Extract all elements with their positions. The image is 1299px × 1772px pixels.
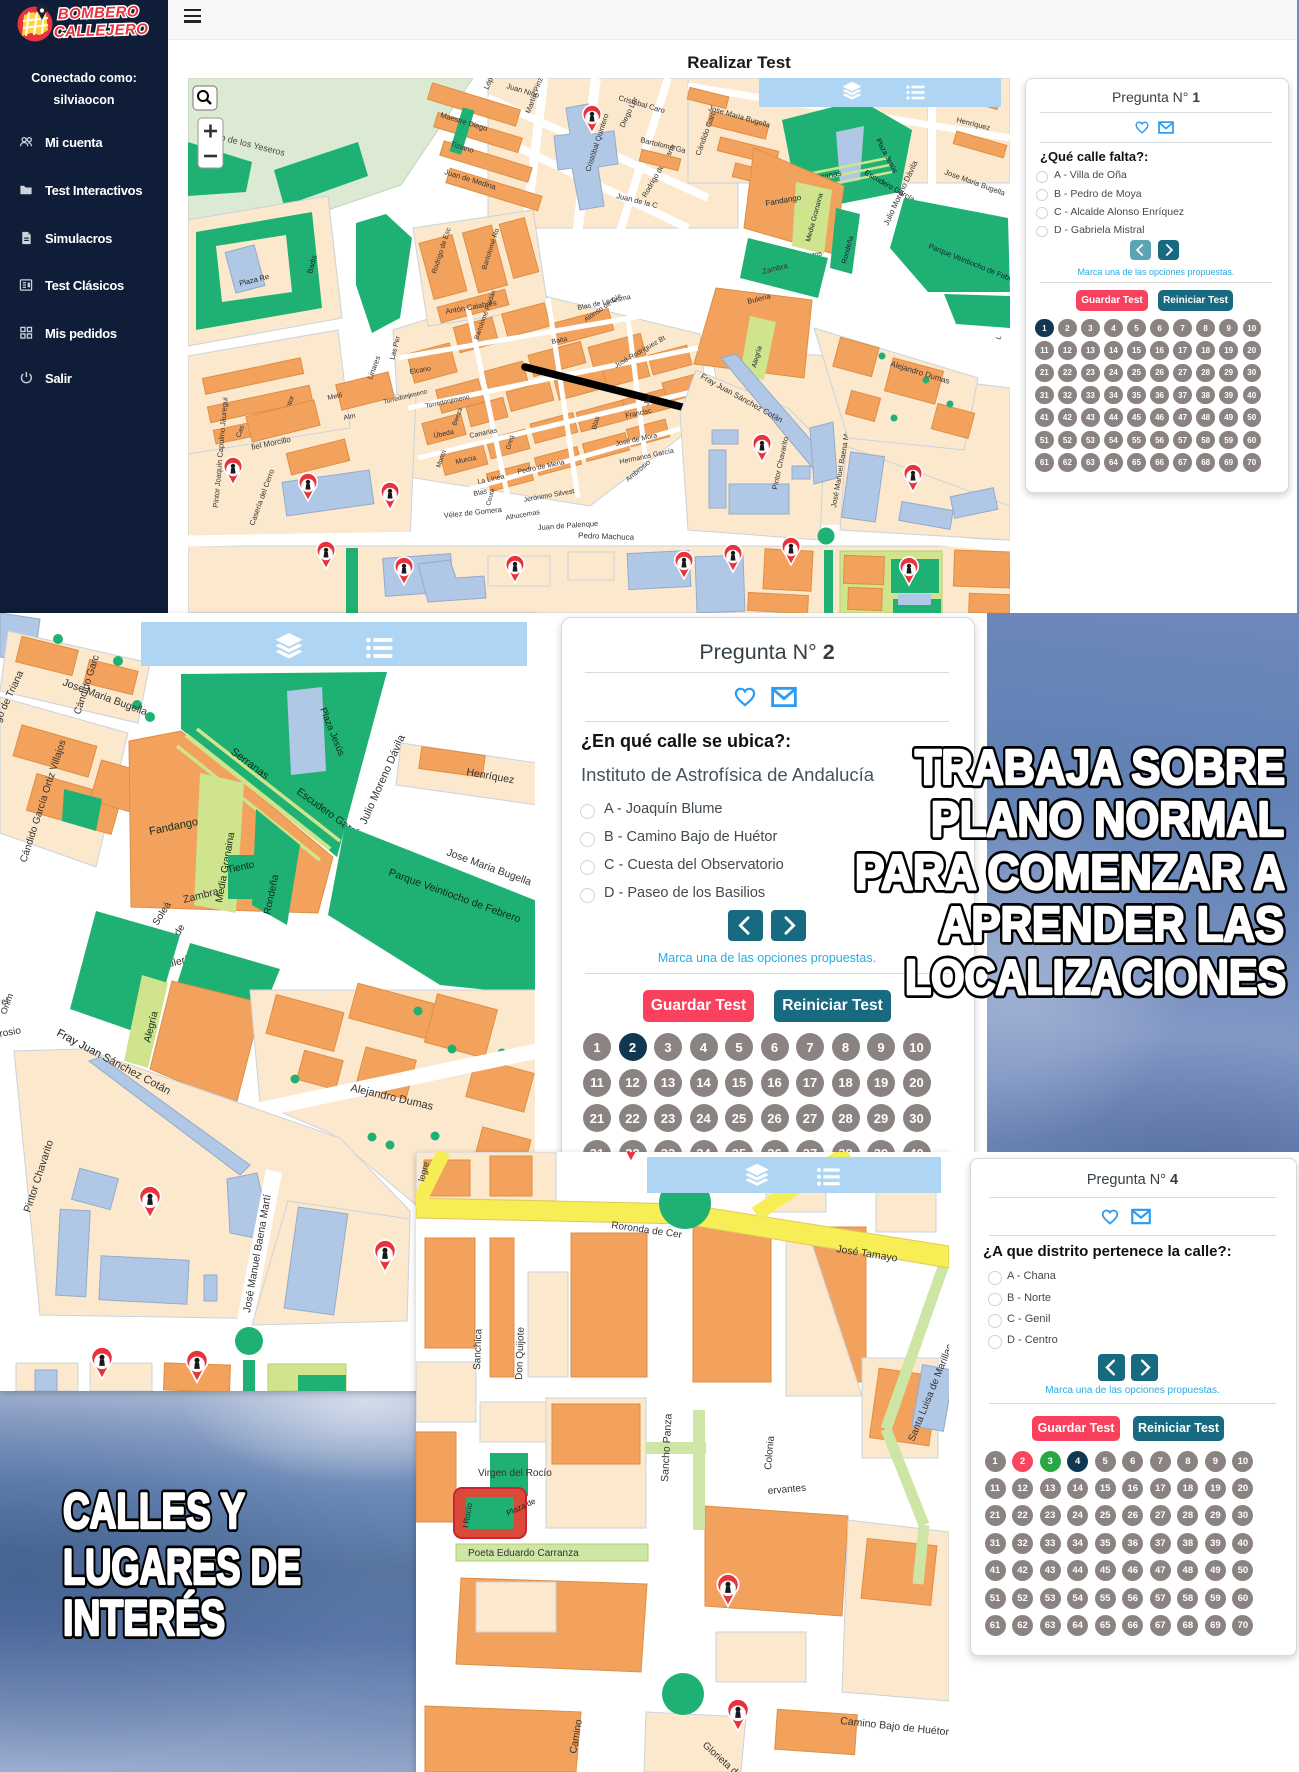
svg-text:LUGARES DE: LUGARES DE <box>63 1539 301 1595</box>
svg-text:APRENDER LAS: APRENDER LAS <box>940 898 1284 952</box>
svg-text:LOCALIZACIONES: LOCALIZACIONES <box>905 951 1286 1005</box>
svg-text:CALLES Y: CALLES Y <box>63 1483 245 1539</box>
svg-text:PARA COMENZAR A: PARA COMENZAR A <box>855 846 1285 900</box>
svg-text:PLANO NORMAL: PLANO NORMAL <box>931 793 1284 847</box>
svg-text:INTERÉS: INTERÉS <box>63 1590 225 1646</box>
svg-text:TRABAJA SOBRE: TRABAJA SOBRE <box>915 741 1285 795</box>
